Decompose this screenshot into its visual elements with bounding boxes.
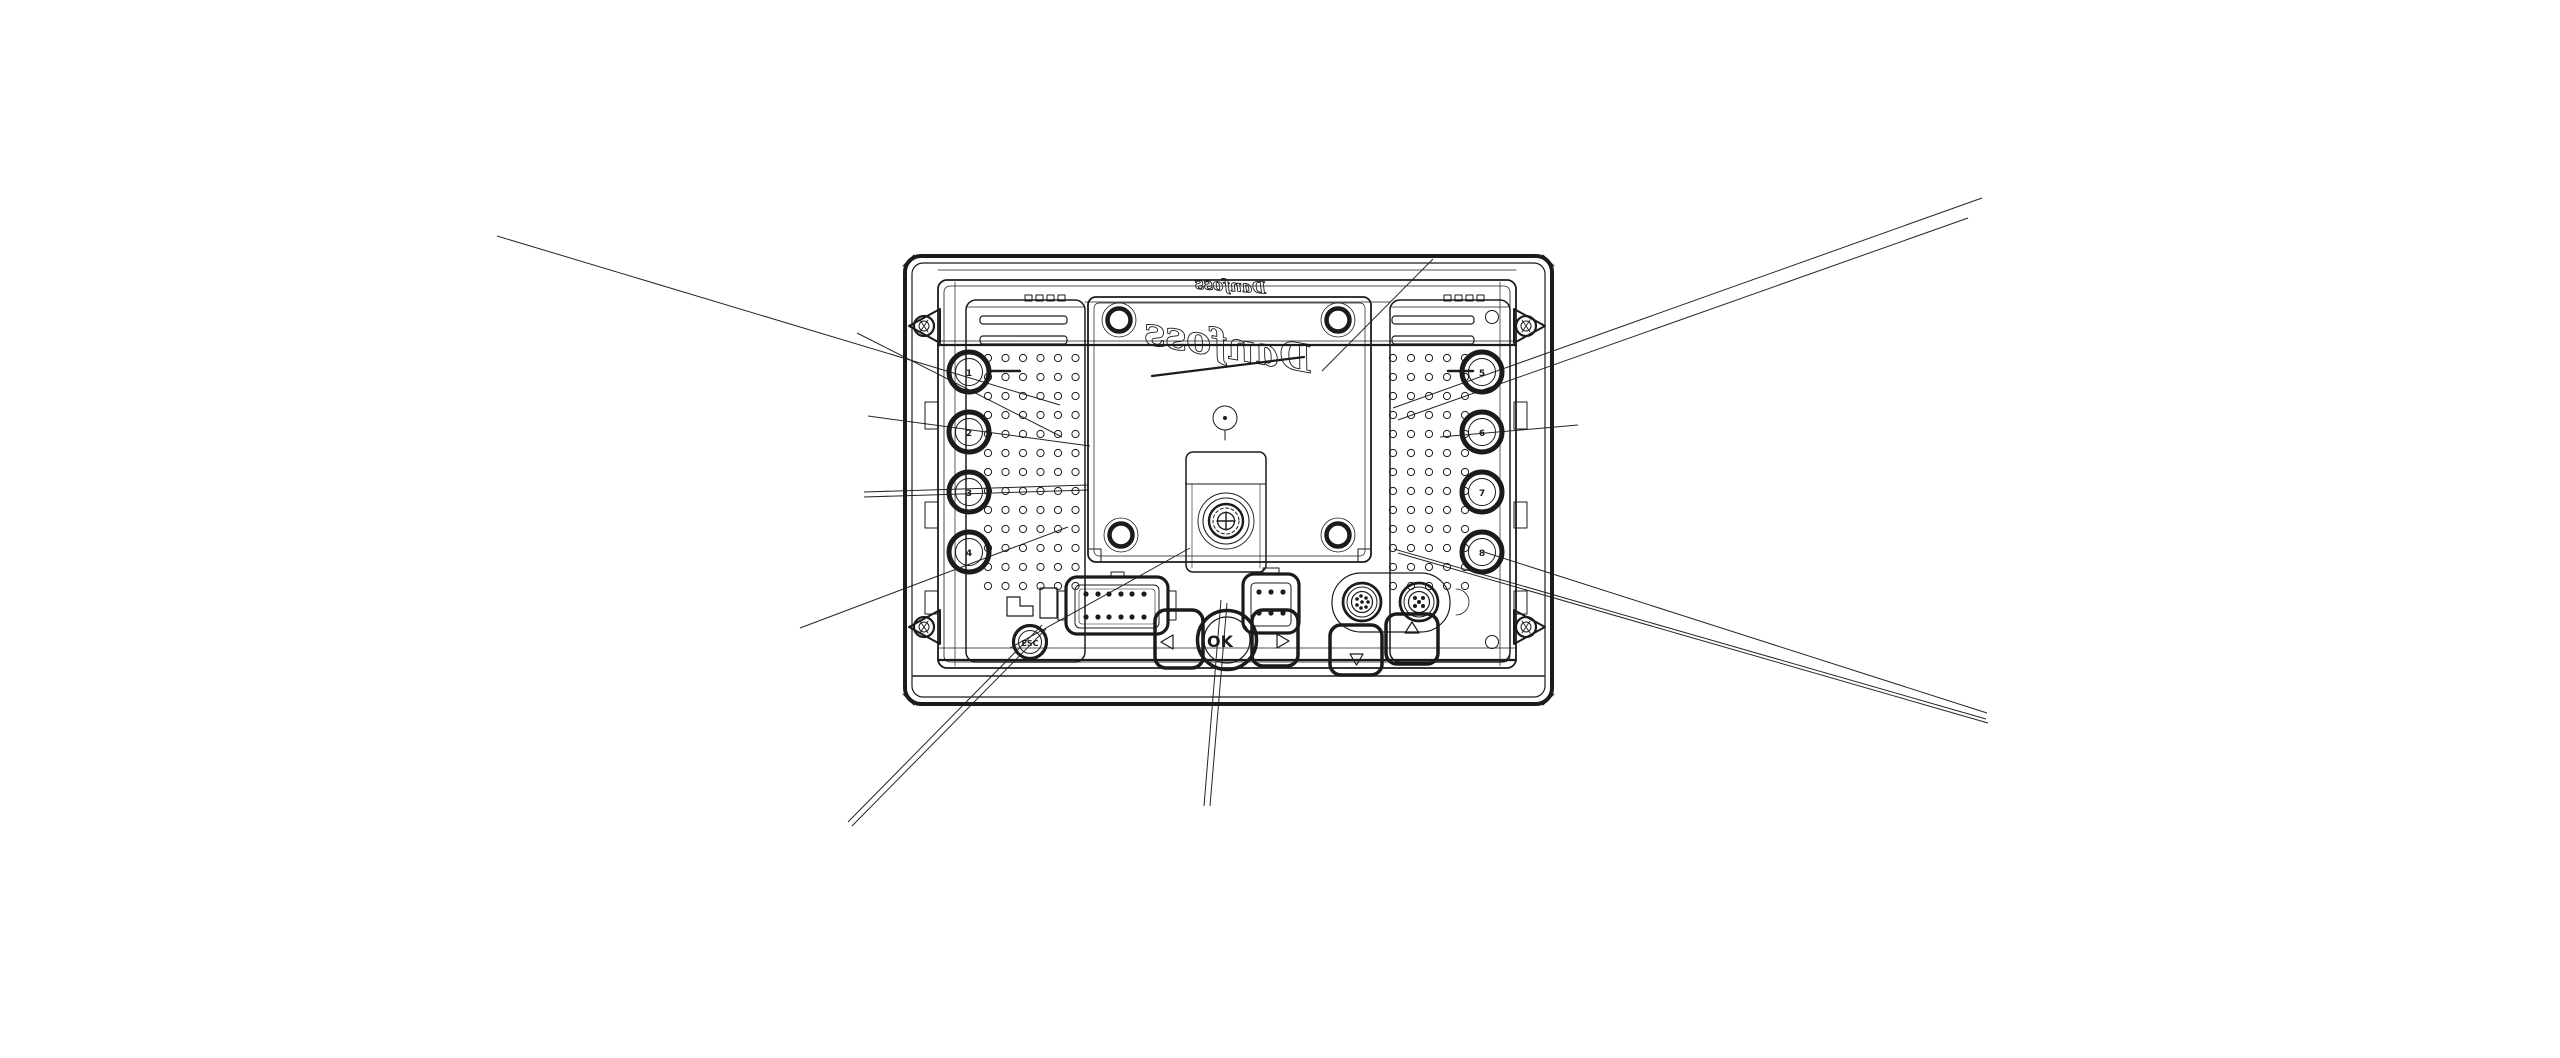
connector-8pin-pins (1256, 589, 1261, 594)
speaker-grille-left (1002, 487, 1009, 494)
speaker-grille-right (1461, 449, 1468, 456)
deutsch-pins (1083, 591, 1088, 596)
speaker-grille-right (1425, 354, 1432, 361)
deutsch-pins (1106, 591, 1111, 596)
deutsch-pins (1118, 614, 1123, 619)
speaker-grille-right (1407, 525, 1414, 532)
brand-logo-large: Danfoss (1141, 308, 1317, 382)
speaker-grille-left (1019, 506, 1026, 513)
speaker-grille-right (1407, 468, 1414, 475)
leader-line (1322, 259, 1433, 371)
m12-a-pins (1355, 597, 1359, 601)
mount-tab (925, 502, 938, 528)
speaker-grille-right (1443, 354, 1450, 361)
speaker-grille-left (1037, 354, 1044, 361)
m12-a-pins (1364, 605, 1368, 609)
speaker-grille-left (1037, 449, 1044, 456)
speaker-grille-right (1407, 449, 1414, 456)
speaker-grille-right (1425, 411, 1432, 418)
speaker-grille-right (1407, 392, 1414, 399)
speaker-grille-left (984, 582, 991, 589)
speaker-grille-left (1037, 468, 1044, 475)
speaker-grille-left (1019, 449, 1026, 456)
speaker-grille-right (1443, 525, 1450, 532)
speaker-grille-right (1425, 563, 1432, 570)
ok-label: OK (1207, 632, 1234, 651)
speaker-grille-left (1054, 525, 1061, 532)
speaker-grille-left (1072, 392, 1079, 399)
nav-up-glyph (1405, 622, 1419, 633)
deutsch-pins (1083, 614, 1088, 619)
speaker-grille-left (984, 506, 991, 513)
speaker-grille-right (1407, 487, 1414, 494)
speaker-grille-left (1037, 411, 1044, 418)
deutsch-pins (1095, 614, 1100, 619)
speaker-grille-left (1072, 430, 1079, 437)
technical-drawing: 12345678ESCOKDanfossDanfoss (0, 0, 2560, 1058)
speaker-grille-left (1054, 506, 1061, 513)
vent-slot (1392, 336, 1474, 344)
speaker-grille-left (1072, 373, 1079, 380)
deutsch-connector-12pin (1066, 577, 1168, 634)
deutsch-pins (1106, 614, 1111, 619)
speaker-grille-left (984, 449, 991, 456)
connector-8pin-pins (1280, 589, 1285, 594)
m12-b-pins (1413, 604, 1417, 608)
side-button-4-label: 4 (966, 549, 972, 559)
connector-8pin-pins (1268, 589, 1273, 594)
speaker-grille-left (1002, 411, 1009, 418)
speaker-grille-left (1054, 392, 1061, 399)
speaker-grille-right (1407, 544, 1414, 551)
speaker-grille-right (1443, 449, 1450, 456)
side-button-5-label: 5 (1479, 369, 1485, 379)
speaker-grille-left (1002, 468, 1009, 475)
corner-bracket (1514, 610, 1545, 644)
speaker-grille-left (1037, 506, 1044, 513)
speaker-grille-right (1443, 411, 1450, 418)
retainer-bracket (1040, 588, 1057, 618)
speaker-grille-right (1461, 525, 1468, 532)
speaker-grille-left (1054, 411, 1061, 418)
retainer-clip (1007, 597, 1033, 616)
speaker-grille-right (1425, 430, 1432, 437)
m12-b-pins (1413, 596, 1417, 600)
side-button-8-label: 8 (1479, 549, 1485, 559)
locating-pin-center (1223, 416, 1227, 420)
speaker-grille-left (1037, 544, 1044, 551)
speaker-grille-right (1425, 468, 1432, 475)
vent-slot (980, 316, 1067, 324)
speaker-grille-right (1443, 392, 1450, 399)
speaker-grille-left (1072, 449, 1079, 456)
speaker-grille-left (1037, 430, 1044, 437)
vent-slot (1392, 316, 1474, 324)
speaker-grille-left (1037, 392, 1044, 399)
speaker-grille-right (1425, 525, 1432, 532)
speaker-grille-right (1407, 373, 1414, 380)
housing-hole (1486, 636, 1499, 649)
speaker-grille-left (1072, 525, 1079, 532)
side-button-6-label: 6 (1479, 429, 1485, 439)
speaker-grille-left (1002, 525, 1009, 532)
side-button-2-label: 2 (966, 429, 972, 439)
m12-a-pins (1359, 606, 1363, 610)
screw-boss-ring (1108, 309, 1131, 332)
speaker-grille-left (1037, 373, 1044, 380)
speaker-grille-left (1072, 506, 1079, 513)
deutsch-pins (1129, 614, 1134, 619)
speaker-grille-left (984, 392, 991, 399)
m12-b-pins (1417, 600, 1421, 604)
m12-b-pins (1421, 596, 1425, 600)
speaker-grille-left (1072, 354, 1079, 361)
speaker-grille-right (1407, 563, 1414, 570)
speaker-grille-right (1425, 506, 1432, 513)
side-button-7-label: 7 (1479, 489, 1485, 499)
m12-a-pins (1360, 600, 1364, 604)
vent-slot (980, 336, 1067, 344)
speaker-grille-left (1019, 582, 1026, 589)
speaker-grille-right (1443, 373, 1450, 380)
speaker-grille-left (1054, 373, 1061, 380)
speaker-grille-left (1019, 487, 1026, 494)
speaker-grille-right (1407, 506, 1414, 513)
m12-arc-mark (1456, 589, 1469, 615)
speaker-grille-left (1019, 544, 1026, 551)
speaker-grille-left (1072, 563, 1079, 570)
brand-logo-small: Danfoss (1194, 274, 1268, 298)
speaker-grille-left (1037, 525, 1044, 532)
leader-line (1484, 552, 1987, 713)
speaker-grille-right (1461, 582, 1468, 589)
speaker-grille-right (1407, 430, 1414, 437)
leader-line (852, 629, 1046, 826)
mount-tab (925, 591, 938, 614)
side-button-1-label: 1 (966, 369, 972, 379)
speaker-grille-left (1019, 563, 1026, 570)
speaker-grille-right (1443, 544, 1450, 551)
speaker-grille-left (984, 468, 991, 475)
speaker-grille-right (1443, 506, 1450, 513)
speaker-grille-left (1019, 525, 1026, 532)
nav-right-glyph (1277, 634, 1289, 648)
speaker-grille-left (1002, 392, 1009, 399)
leader-line (848, 625, 1042, 822)
speaker-grille-left (1019, 373, 1026, 380)
leader-line (857, 333, 1062, 437)
speaker-grille-left (1037, 563, 1044, 570)
speaker-grille-left (1054, 563, 1061, 570)
speaker-grille-left (1054, 354, 1061, 361)
speaker-grille-left (1054, 544, 1061, 551)
speaker-grille-left (1054, 468, 1061, 475)
housing-hole (1486, 311, 1499, 324)
speaker-grille-right (1461, 468, 1468, 475)
speaker-grille-left (1002, 582, 1009, 589)
speaker-grille-left (1002, 506, 1009, 513)
speaker-grille-left (1072, 468, 1079, 475)
speaker-grille-right (1425, 544, 1432, 551)
screw-boss-ring (1110, 524, 1133, 547)
m12-a-pins (1364, 596, 1368, 600)
m12-a-pins (1366, 600, 1370, 604)
speaker-grille-left (1054, 449, 1061, 456)
speaker-grille-left (984, 525, 991, 532)
esc-label: ESC (1021, 639, 1038, 648)
speaker-grille-right (1407, 354, 1414, 361)
leader-line (1394, 549, 1986, 719)
m12-a-pins (1355, 603, 1359, 607)
nav-left-glyph (1161, 635, 1173, 649)
screw-boss-ring (1327, 309, 1350, 332)
screw-boss-ring (1327, 524, 1350, 547)
speaker-grille-left (1002, 354, 1009, 361)
speaker-grille-left (1072, 411, 1079, 418)
speaker-grille-right (1443, 468, 1450, 475)
speaker-grille-left (1072, 487, 1079, 494)
speaker-grille-left (1072, 544, 1079, 551)
speaker-grille-left (1019, 354, 1026, 361)
speaker-grille-right (1425, 373, 1432, 380)
speaker-grille-left (1002, 373, 1009, 380)
drawing-page: 12345678ESCOKDanfossDanfoss (0, 0, 2560, 1058)
speaker-grille-right (1425, 487, 1432, 494)
speaker-grille-left (1002, 449, 1009, 456)
deutsch-pins (1141, 591, 1146, 596)
deutsch-pins (1095, 591, 1100, 596)
deutsch-pins (1129, 591, 1134, 596)
speaker-grille-right (1443, 487, 1450, 494)
side-button-3-label: 3 (966, 489, 972, 499)
deutsch-pins (1141, 614, 1146, 619)
deutsch-pins (1118, 591, 1123, 596)
m12-a-pins (1359, 594, 1363, 598)
speaker-grille-left (1019, 468, 1026, 475)
m12-b-pins (1421, 604, 1425, 608)
leader-line (497, 236, 1060, 405)
deutsch-connector-inner (1075, 585, 1159, 628)
speaker-grille-left (1002, 563, 1009, 570)
corner-bracket (1514, 309, 1545, 343)
speaker-grille-right (1425, 449, 1432, 456)
m12-housing (1332, 573, 1450, 632)
